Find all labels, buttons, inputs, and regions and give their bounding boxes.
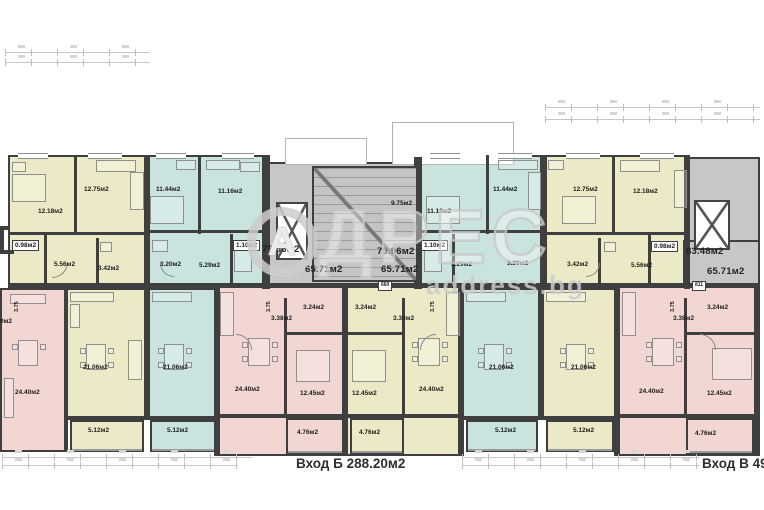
area-label: 4.76м2 bbox=[297, 429, 318, 436]
dimension-tick bbox=[488, 462, 489, 469]
entrance-v-total-label: Вход В 493 bbox=[702, 456, 764, 471]
wall-segment bbox=[8, 232, 148, 235]
furniture bbox=[646, 356, 652, 362]
dimension-tick bbox=[5, 59, 6, 66]
wall-segment bbox=[44, 232, 47, 288]
area-label: 1.10м2 bbox=[233, 240, 260, 251]
room bbox=[546, 420, 614, 452]
wall-segment bbox=[0, 226, 4, 254]
floor-plan-canvas: 12.18м212.75м20.98м25.56м23.42м211.44м21… bbox=[0, 0, 764, 510]
area-label: 5.12м2 bbox=[495, 427, 516, 434]
furniture bbox=[622, 292, 636, 336]
area-label: 3.24м2 bbox=[707, 304, 728, 311]
furniture bbox=[466, 292, 506, 302]
wall-segment bbox=[342, 284, 348, 456]
dimension-tick bbox=[109, 49, 110, 56]
dimension-tick bbox=[54, 454, 55, 461]
dimension-tick bbox=[28, 454, 29, 461]
furniture bbox=[152, 292, 192, 302]
wall-segment bbox=[74, 155, 77, 235]
room bbox=[150, 420, 216, 452]
dimension-number bbox=[631, 458, 638, 461]
balcony-rail bbox=[688, 451, 752, 453]
furniture bbox=[562, 196, 596, 224]
dimension-number bbox=[67, 450, 74, 453]
balcony-rail bbox=[288, 451, 342, 453]
dimension-tick bbox=[670, 462, 671, 469]
area-label: 3.42м2 bbox=[567, 261, 588, 268]
furniture bbox=[70, 304, 80, 328]
furniture bbox=[498, 160, 538, 170]
dimension-tick bbox=[727, 116, 728, 123]
entrance-b-total-label: Вход Б 288.20м2 bbox=[296, 456, 405, 471]
area-label: 24.40м2 bbox=[419, 386, 444, 393]
dimension-tick bbox=[545, 116, 546, 123]
furniture bbox=[186, 348, 192, 354]
area-label: 3.24м2 bbox=[355, 304, 376, 311]
area-label: 3.20м2 bbox=[507, 260, 528, 267]
area-label: 79.96м2 bbox=[262, 245, 299, 255]
area-label: 5.56м2 bbox=[54, 261, 75, 268]
dimension-tick bbox=[592, 454, 593, 461]
area-label: 83.48м2 bbox=[686, 247, 723, 257]
furniture bbox=[442, 356, 448, 362]
area-label: 0.98м2 bbox=[651, 241, 678, 252]
dimension-tick bbox=[57, 49, 58, 56]
window bbox=[222, 153, 254, 159]
upper-floor-outline bbox=[285, 138, 367, 165]
area-label: 79.96м2 bbox=[377, 247, 414, 257]
window bbox=[430, 153, 460, 159]
area-label: 0м2 bbox=[0, 318, 12, 325]
dimension-tick bbox=[83, 49, 84, 56]
dimension-number bbox=[119, 450, 126, 453]
wall-segment bbox=[66, 416, 148, 420]
wall-segment bbox=[618, 414, 760, 418]
dimension-tick bbox=[618, 462, 619, 469]
dimension-tick bbox=[80, 462, 81, 469]
furniture bbox=[248, 338, 270, 366]
dimension-tick bbox=[514, 462, 515, 469]
area-label: 660 bbox=[378, 281, 392, 291]
dimension-number bbox=[610, 100, 617, 103]
window bbox=[498, 153, 532, 159]
furniture bbox=[108, 362, 114, 368]
dimension-tick bbox=[135, 49, 136, 56]
dimension-number bbox=[714, 112, 721, 115]
dimension-tick bbox=[597, 116, 598, 123]
furniture bbox=[272, 356, 278, 362]
dimension-tick bbox=[236, 454, 237, 461]
dimension-number bbox=[579, 458, 586, 461]
wall-segment bbox=[614, 284, 620, 456]
furniture bbox=[676, 356, 682, 362]
area-label: 11.16м2 bbox=[218, 188, 242, 195]
furniture bbox=[296, 350, 330, 382]
furniture bbox=[130, 172, 144, 210]
furniture bbox=[18, 340, 38, 366]
dimension-number bbox=[662, 112, 669, 115]
dimension-number bbox=[631, 450, 638, 453]
furniture bbox=[4, 378, 14, 418]
furniture bbox=[506, 348, 512, 354]
area-label: 11.16м2 bbox=[427, 208, 451, 215]
wall-segment bbox=[148, 230, 264, 233]
furniture bbox=[412, 342, 418, 348]
dimension-tick bbox=[236, 462, 237, 469]
area-label: 3.42м2 bbox=[98, 265, 119, 272]
dimension-tick bbox=[540, 462, 541, 469]
area-label: 21.06м2 bbox=[83, 364, 108, 371]
balcony-rail bbox=[152, 449, 214, 451]
furniture bbox=[240, 162, 260, 172]
wall-segment bbox=[198, 155, 201, 234]
area-label: 12.45м2 bbox=[300, 390, 325, 397]
wall-segment bbox=[144, 288, 148, 420]
dimension-number bbox=[67, 458, 74, 461]
dimension-number bbox=[171, 458, 178, 461]
area-label: 12.75м2 bbox=[84, 186, 109, 193]
dimension-tick bbox=[57, 59, 58, 66]
furniture bbox=[108, 348, 114, 354]
room bbox=[0, 288, 66, 452]
balcony-rail bbox=[352, 451, 402, 453]
dimension-tick bbox=[158, 462, 159, 469]
area-label: 65.71м2 bbox=[707, 267, 744, 277]
furniture bbox=[100, 242, 112, 252]
dimension-tick bbox=[31, 49, 32, 56]
dimension-tick bbox=[2, 462, 3, 469]
area-label: 5.12м2 bbox=[88, 427, 109, 434]
dimension-tick bbox=[488, 454, 489, 461]
area-label: 24.40м2 bbox=[235, 386, 260, 393]
furniture bbox=[620, 160, 660, 172]
wall-segment bbox=[148, 416, 218, 420]
wall-segment bbox=[486, 155, 489, 234]
furniture bbox=[12, 174, 46, 202]
dimension-tick bbox=[54, 462, 55, 469]
dimension-tick bbox=[675, 116, 676, 123]
area-label: 3.75 bbox=[430, 301, 436, 312]
dimension-line bbox=[5, 52, 150, 53]
furniture bbox=[560, 362, 566, 368]
dimension-tick bbox=[753, 104, 754, 111]
window bbox=[566, 153, 600, 159]
wall-segment bbox=[284, 332, 344, 335]
dimension-number bbox=[18, 55, 25, 58]
window bbox=[156, 153, 186, 159]
dimension-tick bbox=[540, 454, 541, 461]
window bbox=[18, 153, 48, 159]
furniture bbox=[80, 348, 86, 354]
furniture bbox=[560, 348, 566, 354]
area-label: 5.12м2 bbox=[573, 427, 594, 434]
dimension-number bbox=[15, 450, 22, 453]
area-label: 12.45м2 bbox=[707, 390, 732, 397]
dimension-tick bbox=[566, 462, 567, 469]
furniture bbox=[158, 348, 164, 354]
dimension-number bbox=[223, 458, 230, 461]
dimension-tick bbox=[462, 462, 463, 469]
wall-segment bbox=[346, 414, 462, 418]
dimension-tick bbox=[80, 454, 81, 461]
furniture bbox=[242, 356, 248, 362]
dimension-number bbox=[683, 450, 690, 453]
area-label: 12.18м2 bbox=[633, 188, 658, 195]
area-label: 5.29м2 bbox=[451, 261, 472, 268]
area-label: 3.75 bbox=[670, 301, 676, 312]
dimension-number bbox=[662, 100, 669, 103]
area-label: 12.75м2 bbox=[573, 186, 598, 193]
dimension-tick bbox=[649, 116, 650, 123]
dimension-tick bbox=[701, 104, 702, 111]
dimension-number bbox=[122, 55, 129, 58]
dimension-number bbox=[558, 112, 565, 115]
area-label: 24.40м2 bbox=[639, 388, 664, 395]
furniture bbox=[588, 348, 594, 354]
dimension-number bbox=[527, 458, 534, 461]
dimension-tick bbox=[545, 104, 546, 111]
dimension-tick bbox=[106, 462, 107, 469]
dimension-tick bbox=[83, 59, 84, 66]
dimension-tick bbox=[696, 454, 697, 461]
furniture bbox=[548, 160, 564, 170]
wall-segment bbox=[538, 288, 542, 420]
furniture bbox=[446, 292, 460, 336]
dimension-number bbox=[122, 45, 129, 48]
furniture bbox=[712, 348, 752, 380]
dimension-tick bbox=[597, 104, 598, 111]
area-label: 9.75м2 bbox=[391, 200, 412, 207]
dimension-tick bbox=[696, 462, 697, 469]
area-label: 11.44м2 bbox=[156, 186, 180, 193]
furniture bbox=[674, 170, 687, 208]
furniture bbox=[528, 172, 541, 210]
furniture bbox=[352, 350, 386, 382]
dimension-tick bbox=[31, 59, 32, 66]
elevator-shaft bbox=[694, 200, 730, 250]
dimension-line bbox=[462, 465, 700, 466]
dimension-number bbox=[475, 450, 482, 453]
dimension-tick bbox=[184, 454, 185, 461]
furniture bbox=[676, 342, 682, 348]
room bbox=[466, 420, 538, 452]
wall-segment bbox=[754, 284, 760, 456]
dimension-number bbox=[18, 45, 25, 48]
wall-segment bbox=[452, 234, 455, 286]
area-label: 21.06м2 bbox=[489, 364, 514, 371]
dimension-tick bbox=[701, 116, 702, 123]
dimension-tick bbox=[670, 454, 671, 461]
furniture bbox=[206, 160, 240, 170]
area-label: 3.38м2 bbox=[673, 315, 694, 322]
dimension-tick bbox=[135, 59, 136, 66]
wall-segment bbox=[612, 155, 615, 235]
dimension-tick bbox=[132, 462, 133, 469]
dimension-tick bbox=[109, 59, 110, 66]
furniture bbox=[546, 292, 586, 302]
dimension-tick bbox=[158, 454, 159, 461]
wall-segment bbox=[462, 416, 542, 420]
area-label: 11.44м2 bbox=[493, 186, 517, 193]
dimension-line bbox=[5, 62, 150, 63]
furniture bbox=[12, 162, 26, 172]
area-label: 3.24м2 bbox=[303, 304, 324, 311]
dimension-number bbox=[475, 458, 482, 461]
dimension-tick bbox=[28, 462, 29, 469]
area-label: 4.76м2 bbox=[359, 429, 380, 436]
wall-segment bbox=[96, 238, 99, 288]
dimension-tick bbox=[462, 454, 463, 461]
furniture bbox=[272, 342, 278, 348]
wall-segment bbox=[542, 416, 618, 420]
dimension-number bbox=[610, 112, 617, 115]
dimension-tick bbox=[210, 462, 211, 469]
dimension-tick bbox=[644, 462, 645, 469]
window bbox=[88, 153, 122, 159]
dimension-number bbox=[714, 100, 721, 103]
window bbox=[640, 153, 674, 159]
area-label: 3.20м2 bbox=[160, 261, 181, 268]
furniture bbox=[478, 348, 484, 354]
furniture bbox=[220, 292, 234, 336]
furniture bbox=[478, 362, 484, 368]
dimension-number bbox=[70, 55, 77, 58]
area-label: 21.06м2 bbox=[571, 364, 596, 371]
area-label: 3.75 bbox=[266, 301, 272, 312]
furniture bbox=[176, 160, 196, 170]
furniture bbox=[40, 344, 46, 350]
dimension-tick bbox=[210, 454, 211, 461]
furniture bbox=[96, 160, 136, 172]
area-label: 3.38м2 bbox=[271, 315, 292, 322]
wall-segment bbox=[218, 414, 346, 418]
furniture bbox=[442, 342, 448, 348]
wall-segment bbox=[684, 332, 756, 335]
dimension-tick bbox=[649, 104, 650, 111]
wall-segment bbox=[346, 332, 404, 335]
area-label: 12.45м2 bbox=[352, 390, 377, 397]
dimension-tick bbox=[571, 116, 572, 123]
furniture bbox=[652, 338, 674, 366]
area-label: 24.40м2 bbox=[15, 389, 40, 396]
area-label: 0.98м2 bbox=[12, 240, 39, 251]
dimension-number bbox=[119, 458, 126, 461]
wall-segment bbox=[545, 232, 688, 235]
dimension-number bbox=[579, 450, 586, 453]
dimension-number bbox=[70, 45, 77, 48]
wall-segment bbox=[262, 155, 270, 289]
area-label: 1.10м2 bbox=[421, 240, 448, 251]
area-label: 5.12м2 bbox=[167, 427, 188, 434]
dimension-tick bbox=[618, 454, 619, 461]
furniture bbox=[152, 240, 168, 252]
wall-segment bbox=[420, 230, 540, 233]
dimension-tick bbox=[184, 462, 185, 469]
room bbox=[70, 420, 144, 452]
dimension-number bbox=[683, 458, 690, 461]
dimension-tick bbox=[5, 49, 6, 56]
area-label: 21.06м2 bbox=[163, 364, 188, 371]
dimension-tick bbox=[727, 104, 728, 111]
furniture bbox=[12, 344, 18, 350]
area-label: 65.71м2 bbox=[381, 265, 418, 275]
area-label: 3.75 bbox=[14, 301, 20, 312]
dimension-number bbox=[558, 100, 565, 103]
wall-segment bbox=[540, 155, 547, 289]
dimension-tick bbox=[571, 104, 572, 111]
dimension-number bbox=[15, 458, 22, 461]
furniture bbox=[70, 292, 114, 302]
area-label: 5.29м2 bbox=[199, 262, 220, 269]
dimension-tick bbox=[753, 116, 754, 123]
area-label: 5.56м2 bbox=[631, 262, 652, 269]
furniture bbox=[646, 342, 652, 348]
dimension-tick bbox=[623, 104, 624, 111]
dimension-line bbox=[2, 465, 238, 466]
dimension-tick bbox=[132, 454, 133, 461]
wall-segment bbox=[64, 288, 68, 452]
dimension-line bbox=[2, 457, 252, 458]
dimension-tick bbox=[675, 104, 676, 111]
area-label: 12.18м2 bbox=[38, 208, 63, 215]
furniture bbox=[128, 340, 142, 380]
dimension-tick bbox=[106, 454, 107, 461]
dimension-tick bbox=[566, 454, 567, 461]
area-label: 4.76м2 bbox=[695, 430, 716, 437]
dimension-number bbox=[171, 450, 178, 453]
area-label: 65.71м2 bbox=[305, 265, 342, 275]
area-label: 811 bbox=[692, 281, 706, 291]
dimension-number bbox=[223, 450, 230, 453]
dimension-number bbox=[527, 450, 534, 453]
area-label: 3.38м2 bbox=[393, 315, 414, 322]
furniture bbox=[604, 242, 616, 252]
dimension-tick bbox=[623, 116, 624, 123]
furniture bbox=[150, 196, 184, 224]
furniture bbox=[412, 356, 418, 362]
dimension-tick bbox=[514, 454, 515, 461]
dimension-tick bbox=[2, 454, 3, 461]
dimension-tick bbox=[592, 462, 593, 469]
balcony-rail bbox=[72, 449, 142, 451]
dimension-tick bbox=[644, 454, 645, 461]
